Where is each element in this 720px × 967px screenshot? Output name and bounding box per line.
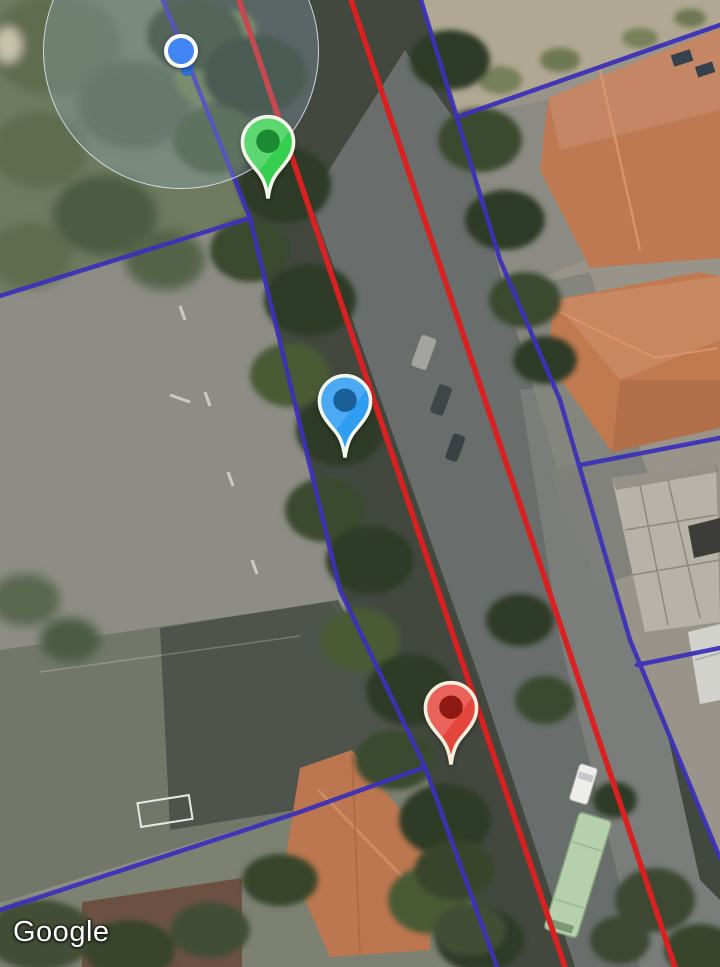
- pin-dot: [333, 388, 357, 412]
- pin-dot: [256, 129, 280, 153]
- google-logo: Google: [13, 916, 110, 949]
- pin-dot: [439, 695, 463, 719]
- my-location-dot: [164, 34, 198, 68]
- blue-pin[interactable]: [316, 373, 374, 463]
- red-pin[interactable]: [422, 680, 480, 770]
- green-pin[interactable]: [239, 114, 297, 204]
- map-canvas[interactable]: Google: [0, 0, 720, 967]
